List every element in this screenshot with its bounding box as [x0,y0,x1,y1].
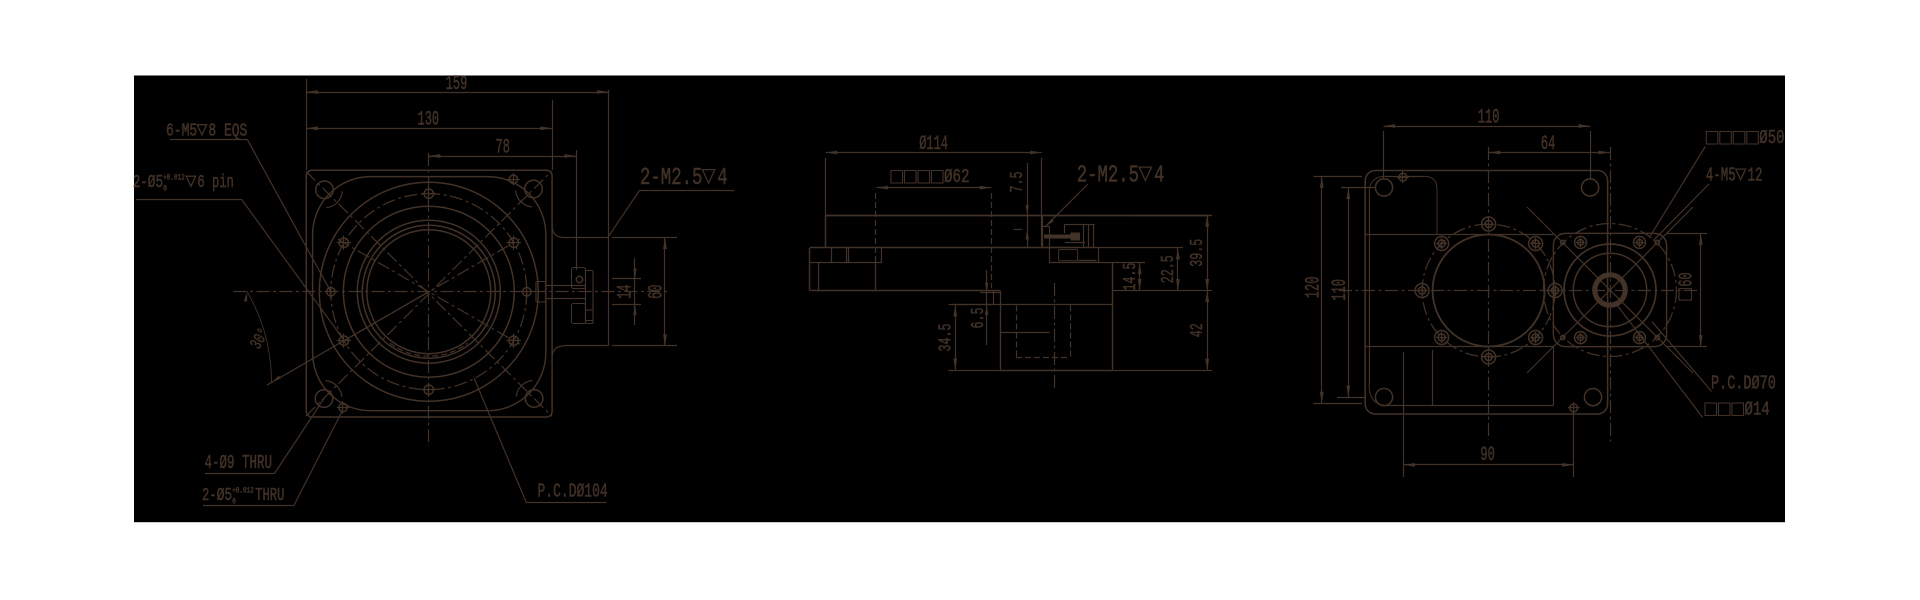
svg-text:60: 60 [1676,272,1698,286]
svg-text:78: 78 [496,136,510,159]
svg-text:4-M5: 4-M5 [1706,165,1736,187]
svg-text:Ø5: Ø5 [217,486,233,506]
svg-text:THRU: THRU [255,486,284,506]
svg-text:34.5: 34.5 [936,324,956,352]
svg-text:4: 4 [717,165,727,192]
svg-text:2-M2.5: 2-M2.5 [640,165,702,192]
svg-text:Ø14: Ø14 [1745,399,1770,421]
svg-text:90: 90 [1480,444,1494,467]
svg-text:6-M5: 6-M5 [166,122,197,142]
svg-text:64: 64 [1541,133,1555,156]
svg-text:110: 110 [1329,279,1352,301]
svg-text:6 pin: 6 pin [197,173,234,193]
svg-text:P.C.DØ104: P.C.DØ104 [538,481,608,503]
svg-text:P.C.DØ70: P.C.DØ70 [1711,373,1776,395]
svg-text:14: 14 [615,285,638,299]
svg-text:Ø62: Ø62 [944,166,970,188]
svg-text:Ø114: Ø114 [919,133,948,156]
svg-text:39.5: 39.5 [1188,239,1208,267]
svg-text:4: 4 [1154,163,1164,190]
svg-text:6.5: 6.5 [969,308,989,329]
svg-text:7.5: 7.5 [1008,172,1028,193]
svg-text:14.5: 14.5 [1121,263,1141,291]
svg-text:130: 130 [418,109,440,132]
svg-text:Ø50: Ø50 [1759,127,1784,149]
svg-text:4-Ø9 THRU: 4-Ø9 THRU [205,452,273,474]
svg-text:8 EQS: 8 EQS [208,122,247,142]
svg-text:2-: 2- [133,173,148,193]
svg-text:0: 0 [163,185,167,194]
svg-text:22.5: 22.5 [1159,255,1179,283]
svg-text:159: 159 [446,73,468,96]
svg-text:12: 12 [1747,165,1762,187]
svg-text:+0.012: +0.012 [163,174,185,183]
svg-text:+0.012: +0.012 [232,487,254,496]
svg-text:110: 110 [1478,106,1500,129]
svg-text:2-: 2- [202,486,217,506]
svg-text:120: 120 [1302,277,1325,299]
svg-text:Ø5: Ø5 [148,173,164,193]
svg-text:42: 42 [1188,323,1208,337]
svg-text:60: 60 [646,285,669,299]
